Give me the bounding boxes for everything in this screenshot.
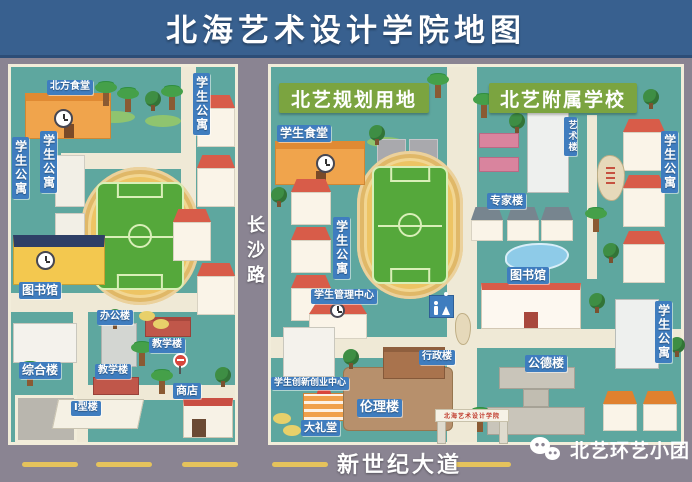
palm-icon bbox=[159, 379, 165, 394]
label-student-dorm: 学生公寓 bbox=[655, 301, 672, 363]
palm-icon bbox=[435, 83, 441, 98]
title-banner: 北海艺术设计学院地图 bbox=[0, 0, 692, 58]
bush-icon bbox=[139, 311, 155, 321]
tree-icon bbox=[215, 367, 231, 383]
label-admin-building: 行政楼 bbox=[419, 350, 455, 365]
gate-sign: 北海艺术设计学院 bbox=[435, 409, 509, 422]
new-century-avenue-label: 新世纪大道 bbox=[337, 447, 462, 479]
stadium-track bbox=[357, 151, 463, 299]
grass-patch-icon bbox=[145, 115, 181, 127]
wechat-icon bbox=[530, 437, 562, 463]
sculpture-icon bbox=[455, 313, 471, 345]
tree-icon bbox=[589, 293, 605, 309]
building-complex bbox=[13, 323, 77, 363]
building-dorm bbox=[197, 155, 235, 207]
label-library: 图书馆 bbox=[19, 282, 61, 299]
palm-icon bbox=[481, 103, 487, 118]
road-dash bbox=[22, 462, 78, 467]
road-dash bbox=[455, 462, 511, 467]
label-ethics-building: 伦理楼 bbox=[357, 399, 402, 417]
soccer-field bbox=[96, 182, 184, 290]
campus-path bbox=[587, 115, 597, 279]
penalty-box bbox=[390, 268, 430, 282]
chat-bubble-icon bbox=[545, 447, 560, 460]
restroom-sign-icon bbox=[429, 295, 454, 318]
building-expert-cottage bbox=[507, 207, 539, 241]
building-dorm bbox=[197, 263, 235, 315]
soccer-field bbox=[372, 166, 448, 284]
building-house bbox=[603, 391, 637, 431]
building-north-canteen bbox=[25, 93, 111, 139]
building-shop bbox=[183, 398, 233, 438]
palm-icon bbox=[169, 95, 175, 110]
building-pink-block bbox=[479, 157, 519, 172]
inscribed-stone-icon bbox=[597, 155, 625, 201]
label-shop: 商店 bbox=[173, 383, 201, 399]
label-teaching-building: 教学楼 bbox=[95, 364, 131, 379]
label-student-canteen: 学生食堂 bbox=[277, 125, 331, 142]
tree-icon bbox=[271, 187, 287, 203]
building-expert-cottage bbox=[471, 207, 503, 241]
building-innovation-center bbox=[283, 327, 335, 377]
label-student-dorm: 学生公寓 bbox=[333, 217, 350, 279]
campus-map: 北海艺术设计学院地图 新世纪大道 长沙路 北艺环艺小团 bbox=[0, 0, 692, 482]
building-morality bbox=[523, 389, 549, 407]
label-student-mgmt-center: 学生管理中心 bbox=[311, 289, 377, 304]
door bbox=[524, 312, 538, 328]
road-dash bbox=[272, 462, 328, 467]
road-dash bbox=[96, 462, 152, 467]
palm-icon bbox=[125, 97, 131, 112]
label-affiliated-library: 图书馆 bbox=[507, 267, 549, 284]
label-type-i-building: I型楼 bbox=[71, 401, 101, 416]
building-dorm bbox=[291, 227, 331, 273]
plant-icon bbox=[643, 89, 659, 105]
clock-icon bbox=[54, 109, 73, 128]
penalty-box bbox=[117, 184, 163, 198]
building-teaching bbox=[93, 377, 139, 395]
banner-affiliated-school: 北艺附属学校 bbox=[489, 83, 637, 113]
building-library bbox=[13, 235, 105, 285]
bush-icon bbox=[153, 319, 169, 329]
label-teaching-building: 教学楼 bbox=[149, 338, 185, 353]
bush-icon bbox=[273, 413, 291, 424]
palm-icon bbox=[593, 217, 599, 232]
label-student-dorm: 学生公寓 bbox=[661, 131, 678, 193]
label-north-canteen: 北方食堂 bbox=[47, 80, 93, 95]
road-dash bbox=[182, 462, 238, 467]
building-dorm-tower bbox=[615, 299, 659, 369]
label-innovation-center: 学生创新创业中心 bbox=[271, 377, 349, 390]
building-house bbox=[643, 391, 677, 431]
stop-sign-icon bbox=[173, 353, 188, 368]
tree-icon bbox=[603, 243, 619, 259]
watermark: 北艺环艺小团 bbox=[530, 436, 690, 463]
building-auditorium bbox=[303, 393, 345, 421]
label-student-dorm: 学生公寓 bbox=[12, 137, 29, 199]
label-student-dorm: 学生公寓 bbox=[40, 131, 57, 193]
building-dorm bbox=[291, 179, 331, 225]
watermark-text: 北艺环艺小团 bbox=[570, 436, 690, 463]
female-figure-icon bbox=[442, 306, 450, 315]
building-dorm bbox=[173, 209, 211, 261]
bush-icon bbox=[283, 425, 301, 436]
label-auditorium: 大礼堂 bbox=[301, 420, 340, 436]
tree-icon bbox=[343, 349, 359, 365]
left-campus-panel: 北方食堂 学生公寓 学生公寓 学生公寓 图书馆 综合楼 办公楼 教学楼 教学楼 bbox=[8, 64, 238, 445]
label-complex-building: 综合楼 bbox=[19, 362, 61, 379]
tree-icon bbox=[509, 113, 525, 129]
door bbox=[192, 419, 206, 437]
building-pink-block bbox=[479, 133, 519, 148]
label-office-building: 办公楼 bbox=[97, 310, 133, 325]
changsha-road-label: 长沙路 bbox=[241, 215, 267, 290]
palm-icon bbox=[103, 91, 109, 106]
label-expert-building: 专家楼 bbox=[487, 193, 526, 209]
clock-icon bbox=[330, 303, 345, 318]
building-affiliated-library bbox=[481, 283, 581, 329]
building-dorm bbox=[55, 155, 85, 207]
label-morality-building: 公德楼 bbox=[525, 355, 567, 372]
penalty-box bbox=[390, 168, 430, 182]
label-student-dorm: 学生公寓 bbox=[193, 73, 210, 135]
penalty-box bbox=[117, 274, 163, 288]
building-dorm bbox=[623, 231, 665, 283]
building-dorm bbox=[623, 175, 665, 227]
clock-icon bbox=[36, 251, 55, 270]
male-figure-icon bbox=[434, 306, 438, 315]
gate-post bbox=[499, 420, 508, 444]
gate-post bbox=[437, 420, 446, 444]
page-title: 北海艺术设计学院地图 bbox=[166, 5, 526, 50]
palm-icon bbox=[139, 351, 145, 366]
building-expert-cottage bbox=[541, 207, 573, 241]
tree-icon bbox=[145, 91, 161, 107]
building-art bbox=[527, 109, 569, 193]
stone-calligraphy-icon bbox=[606, 164, 615, 184]
clock-icon bbox=[316, 154, 335, 173]
building-dorm bbox=[623, 119, 665, 171]
banner-planned-zone: 北艺规划用地 bbox=[279, 83, 429, 113]
building-teaching bbox=[145, 317, 191, 337]
label-art-building: 艺术楼 bbox=[564, 117, 577, 156]
right-campus-panel: 北艺规划用地 北艺附属学校 学生食堂 学生公寓 学生管理中心 bbox=[268, 64, 684, 445]
tree-icon bbox=[369, 125, 385, 141]
